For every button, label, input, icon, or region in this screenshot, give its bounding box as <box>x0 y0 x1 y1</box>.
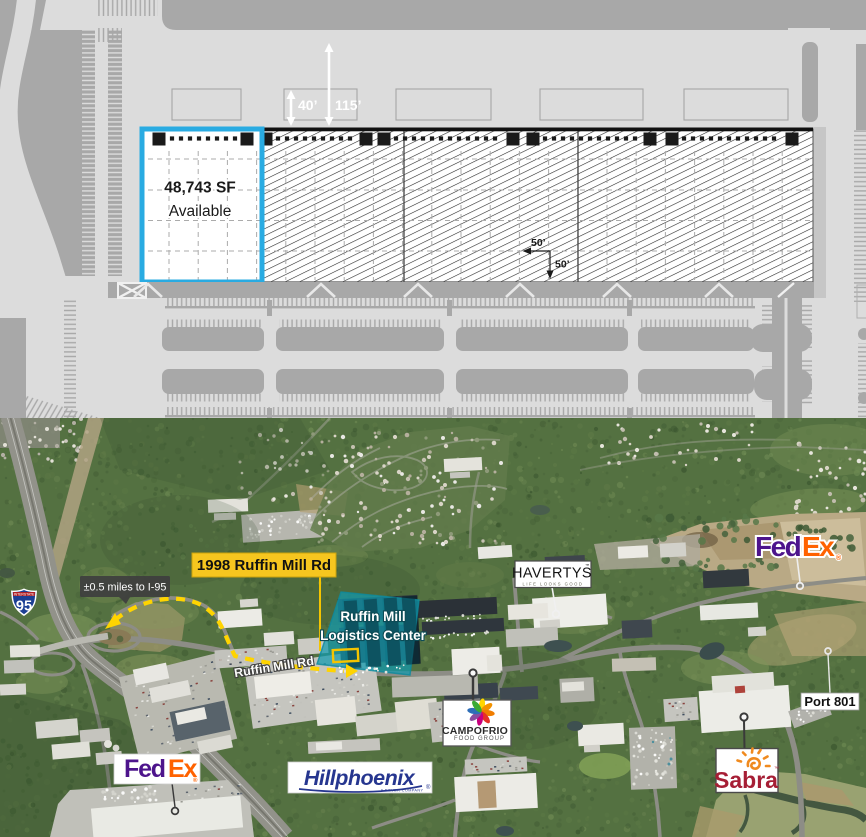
svg-text:®: ® <box>426 784 431 791</box>
svg-text:115’: 115’ <box>335 97 361 113</box>
svg-text:®: ® <box>193 777 198 784</box>
svg-text:Fed: Fed <box>124 755 165 783</box>
svg-text:1998 Ruffin Mill Rd: 1998 Ruffin Mill Rd <box>197 557 331 574</box>
svg-text:A DOVER COMPANY: A DOVER COMPANY <box>381 789 424 793</box>
svg-text:40’: 40’ <box>298 97 317 113</box>
svg-text:50’: 50’ <box>555 259 570 271</box>
svg-text:™: ™ <box>585 563 589 568</box>
svg-text:±0.5 miles to I-95: ±0.5 miles to I-95 <box>84 582 167 594</box>
svg-text:Ex: Ex <box>802 531 835 562</box>
svg-text:LIFE LOOKS GOOD: LIFE LOOKS GOOD <box>523 582 584 587</box>
svg-text:Sabra: Sabra <box>714 767 778 793</box>
svg-text:50’: 50’ <box>531 237 546 249</box>
svg-text:Logistics Center: Logistics Center <box>320 628 427 643</box>
svg-text:FOOD GROUP: FOOD GROUP <box>454 736 505 742</box>
svg-text:48,743 SF: 48,743 SF <box>164 180 236 197</box>
svg-text:Available: Available <box>169 203 232 220</box>
svg-text:HAVERTYS: HAVERTYS <box>512 566 592 582</box>
svg-text:™: ™ <box>774 766 779 772</box>
svg-text:Ruffin Mill: Ruffin Mill <box>340 609 405 624</box>
svg-text:®: ® <box>836 554 842 562</box>
svg-text:Port 801: Port 801 <box>804 694 855 709</box>
svg-text:95: 95 <box>16 599 32 615</box>
svg-text:Hillphoenix: Hillphoenix <box>304 766 416 790</box>
svg-text:INTERSTATE: INTERSTATE <box>14 593 35 597</box>
svg-text:Fed: Fed <box>755 531 801 562</box>
